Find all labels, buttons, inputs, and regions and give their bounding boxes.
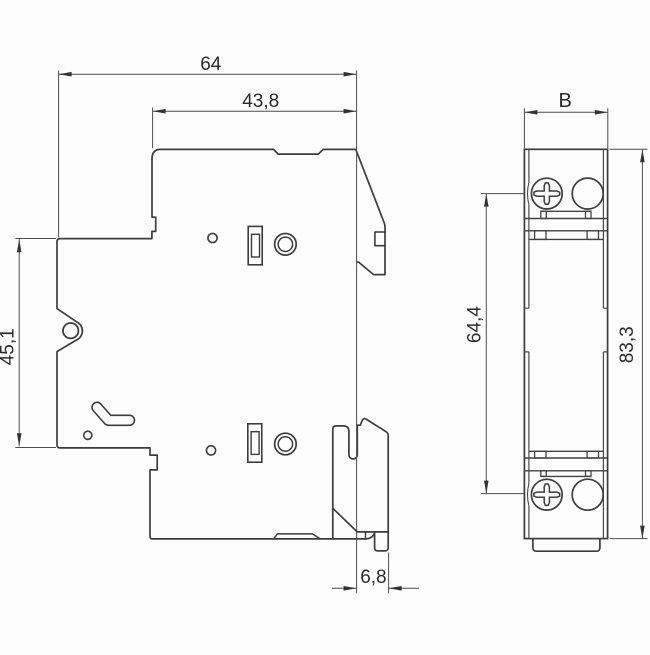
svg-text:6,8: 6,8	[360, 567, 386, 588]
svg-text:43,8: 43,8	[242, 91, 279, 112]
svg-text:64: 64	[200, 54, 222, 75]
svg-text:64,4: 64,4	[465, 306, 486, 343]
svg-text:B: B	[559, 90, 572, 112]
svg-text:83,3: 83,3	[617, 326, 638, 363]
svg-text:45,1: 45,1	[0, 328, 19, 365]
